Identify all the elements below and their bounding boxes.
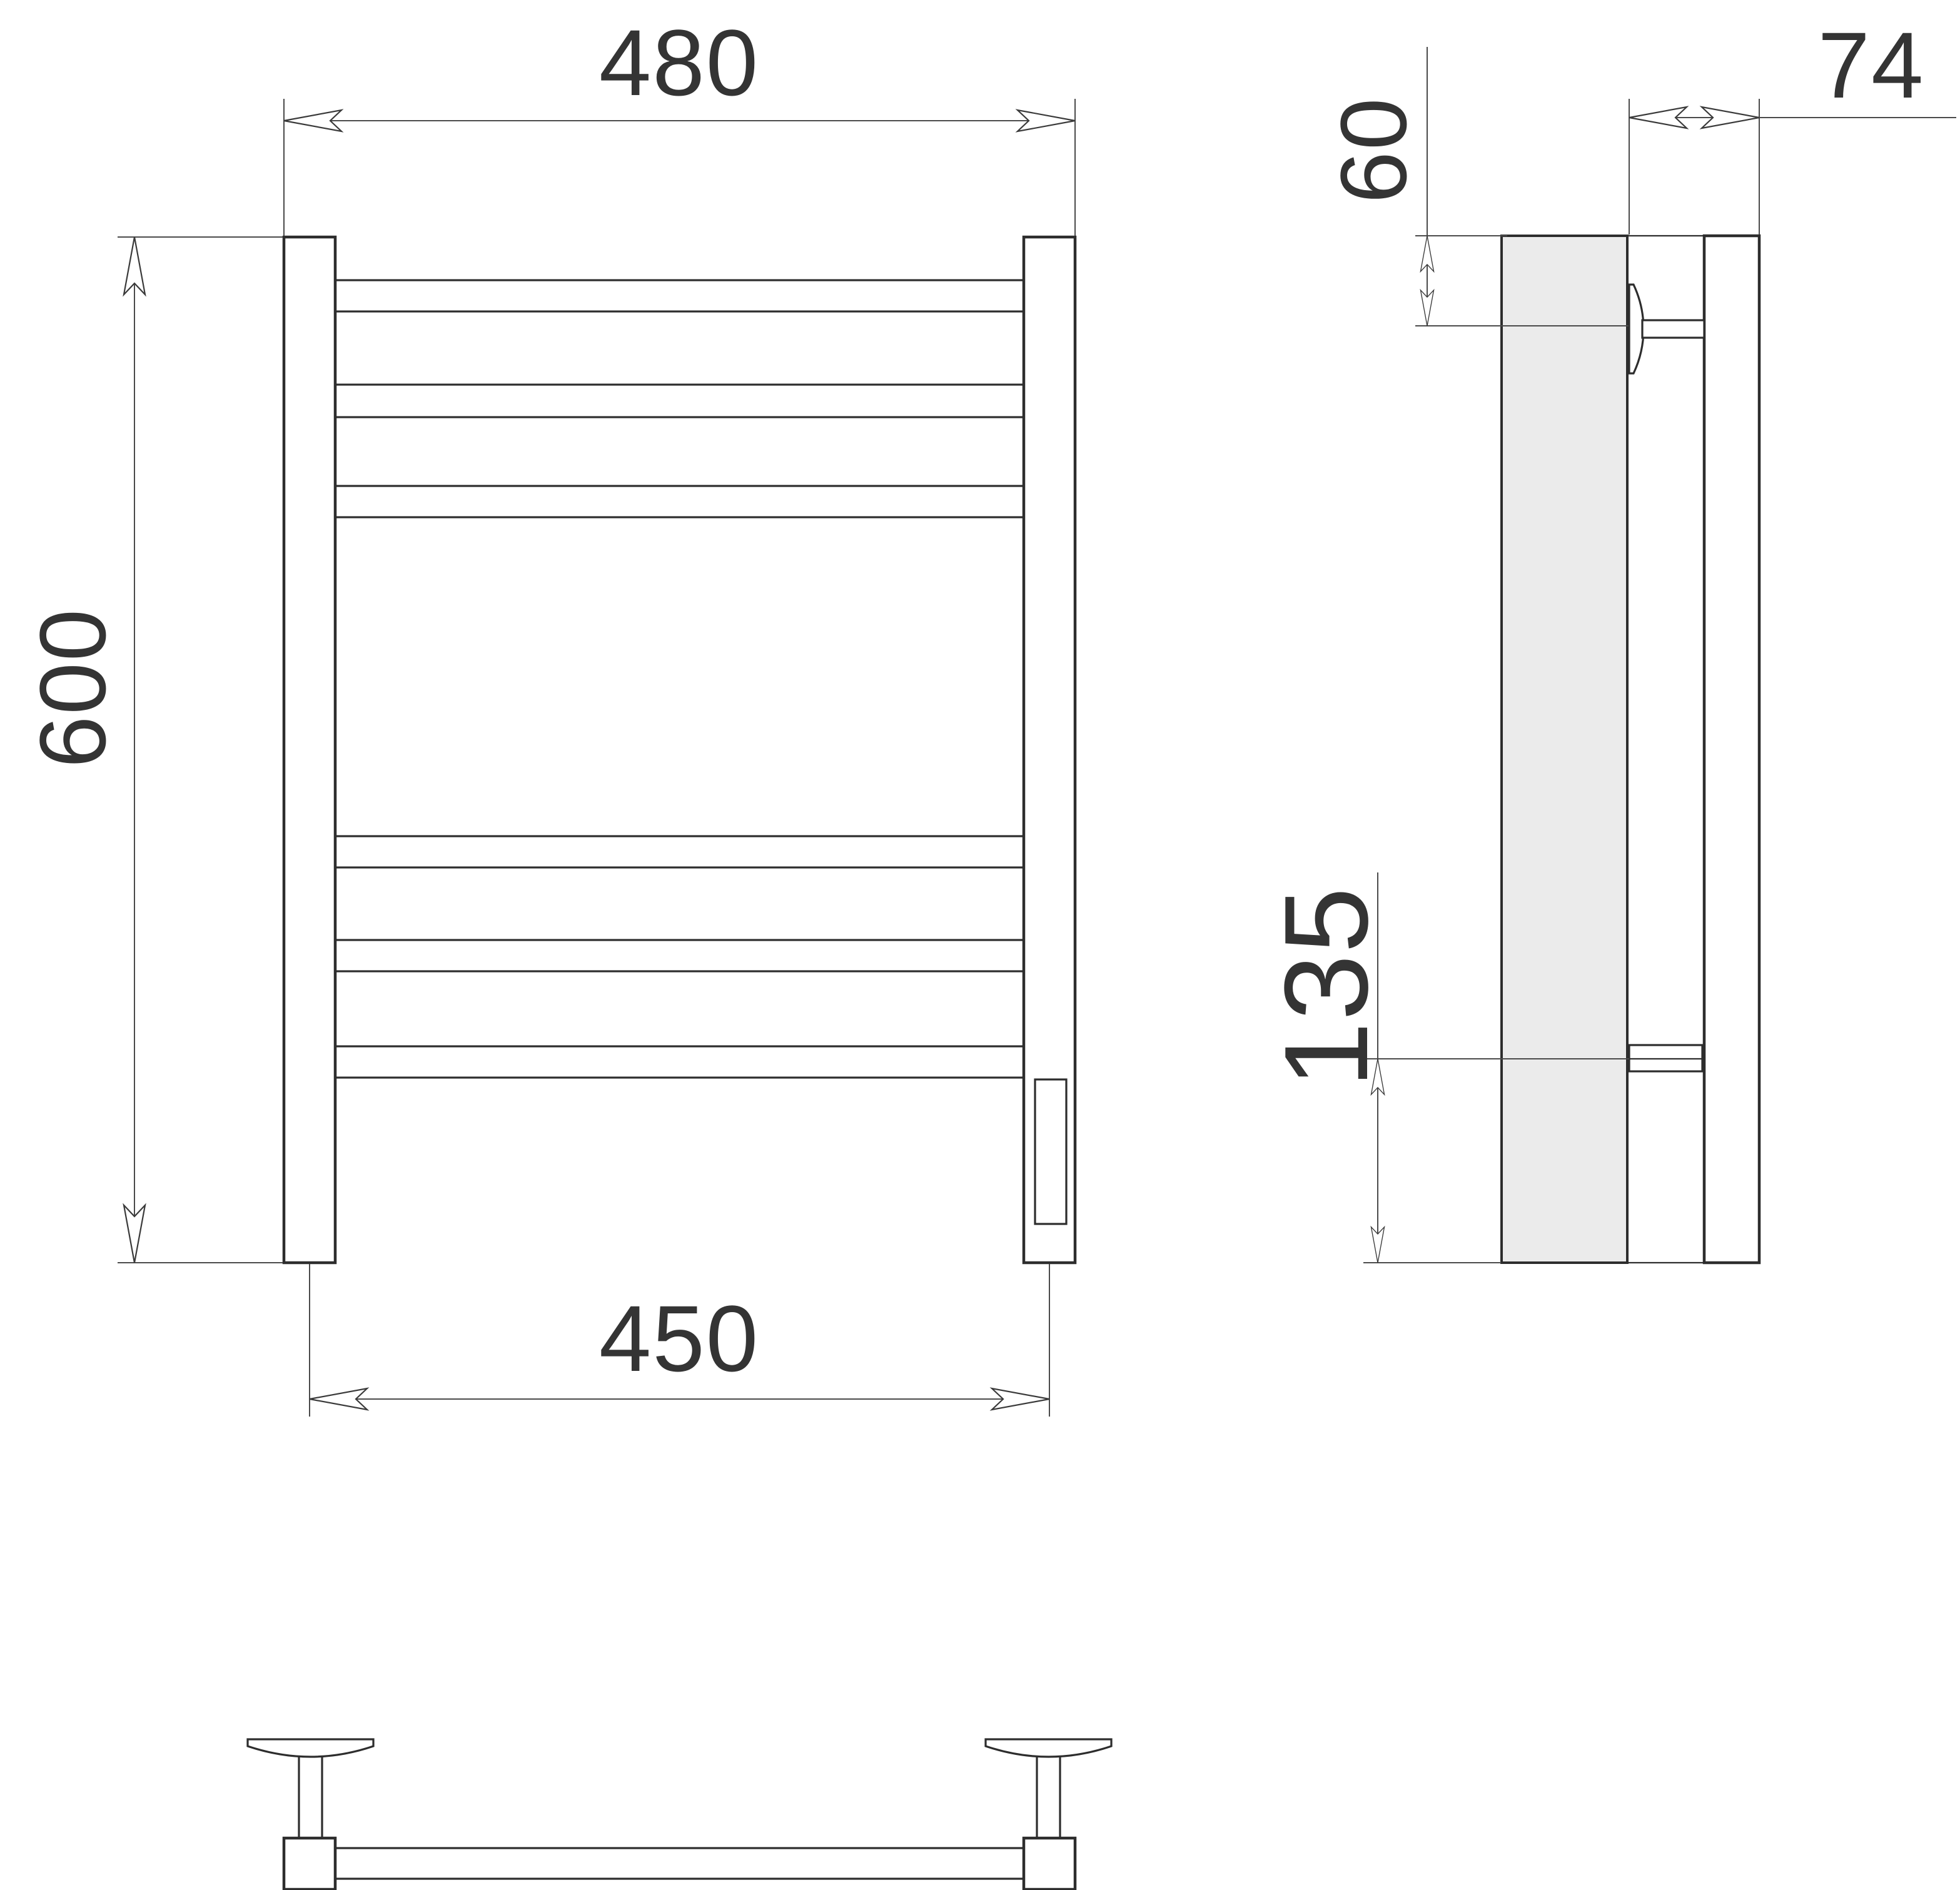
power-module [1035,1079,1066,1224]
bottom-view [248,1739,1111,1889]
rail-2 [335,385,1024,417]
dim-overall-height: 600 [20,237,283,1263]
dim-overall-width: 480 [284,10,1075,236]
side-view: 74 60 135 [1260,13,1956,1263]
left-post [284,237,335,1263]
plan-right-wall-cap [986,1739,1111,1757]
top-bracket [1629,285,1704,373]
technical-drawing: 480 600 450 [0,0,1960,1890]
dim-overall-height-label: 600 [20,608,125,768]
rail-5 [335,940,1024,971]
rail-3 [335,486,1024,517]
dim-depth: 74 [1629,13,1956,235]
rail-group [335,280,1024,1078]
dim-mounting-centers-label: 450 [599,1286,759,1391]
dim-depth-label: 74 [1818,13,1925,118]
dim-mounting-centers: 450 [310,1264,1049,1417]
dim-bottom-offset-label: 135 [1260,886,1393,1088]
dim-top-offset-label: 60 [1321,97,1426,204]
rail-4 [335,836,1024,867]
dim-overall-width-label: 480 [599,10,759,115]
bottom-bracket [1629,1045,1702,1071]
top-bracket-stud [1642,320,1704,338]
drawing-canvas: 480 600 450 [0,0,1960,1890]
plan-right-bracket [986,1739,1111,1889]
plan-right-stem [1037,1747,1060,1838]
rail-6 [335,1046,1024,1078]
plan-left-wall-cap [248,1739,373,1757]
wall-plate [1704,236,1759,1263]
side-panel [1502,236,1627,1263]
front-view: 480 600 450 [20,10,1075,1417]
plan-left-post-section [284,1838,335,1889]
plan-right-post-section [1024,1838,1075,1889]
rail-1 [335,280,1024,311]
plan-left-bracket [248,1739,373,1889]
plan-left-stem [299,1747,322,1838]
